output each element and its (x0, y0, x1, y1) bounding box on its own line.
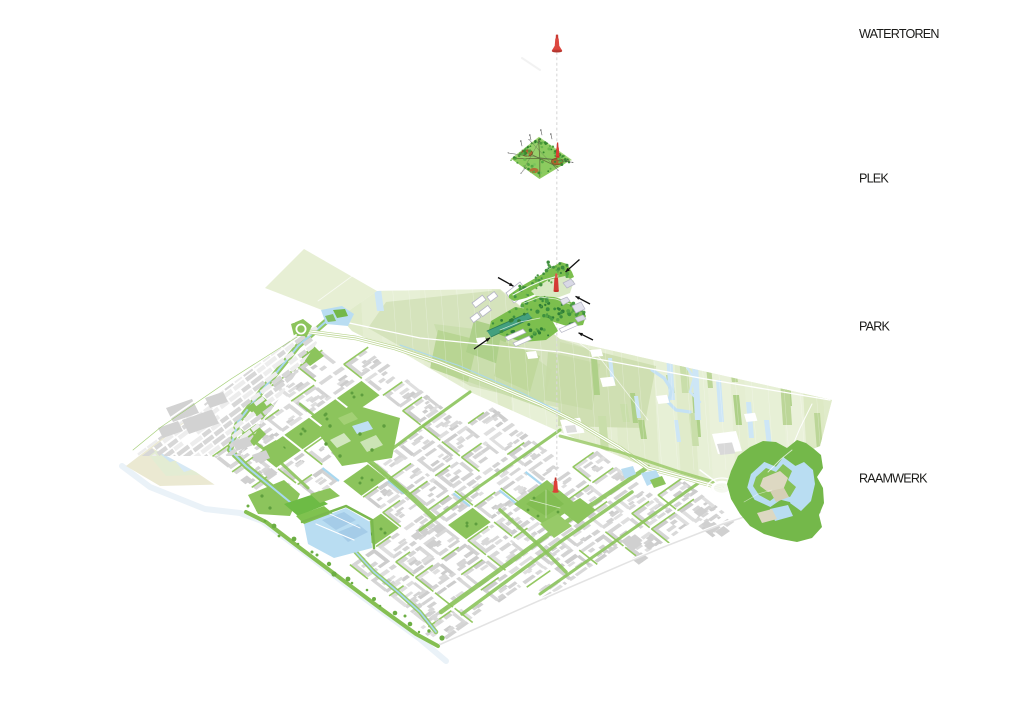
svg-text:PARK: PARK (859, 320, 891, 334)
svg-text:PLEK: PLEK (859, 172, 889, 186)
svg-text:WATERTOREN: WATERTOREN (859, 27, 939, 41)
svg-text:RAAMWERK: RAAMWERK (859, 472, 928, 486)
